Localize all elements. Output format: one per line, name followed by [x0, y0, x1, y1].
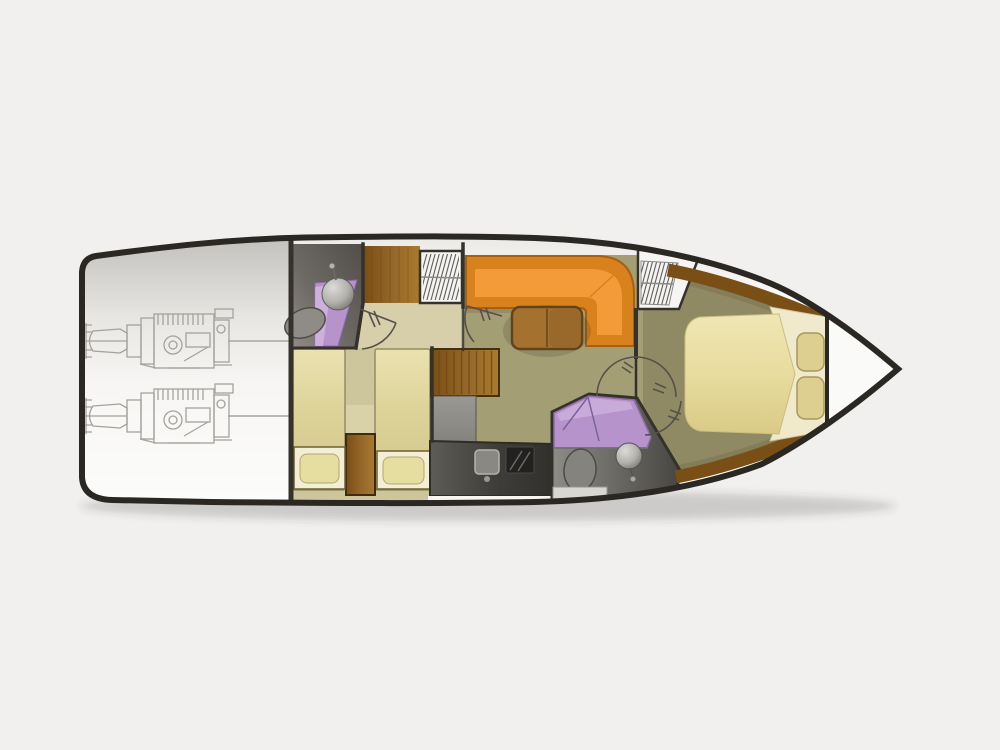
port-pillow: [300, 454, 339, 483]
master-pillow-top: [797, 333, 824, 371]
floorplan-canvas: [0, 0, 1000, 750]
forward-grille-center-bar: [641, 283, 673, 284]
table-leaf-shade: [549, 309, 580, 347]
mid-basin-knob: [631, 477, 636, 482]
aft-washbasin: [322, 278, 354, 310]
galley-side-counter: [431, 396, 476, 442]
wood-steps-chest: [431, 349, 499, 396]
master-bed-mattress: [685, 314, 795, 434]
grille-center-bar: [421, 277, 461, 278]
galley-sink: [475, 450, 499, 474]
berth-wood-cabinet: [346, 434, 375, 495]
master-pillow-bottom: [797, 377, 824, 419]
starboard-pillow: [383, 457, 424, 484]
engine-room-floor: [82, 238, 291, 504]
mid-washbasin: [616, 443, 642, 469]
sink-faucet: [484, 476, 490, 482]
between-berth-seat: [346, 405, 374, 433]
aft-faucet-knob: [329, 263, 335, 269]
